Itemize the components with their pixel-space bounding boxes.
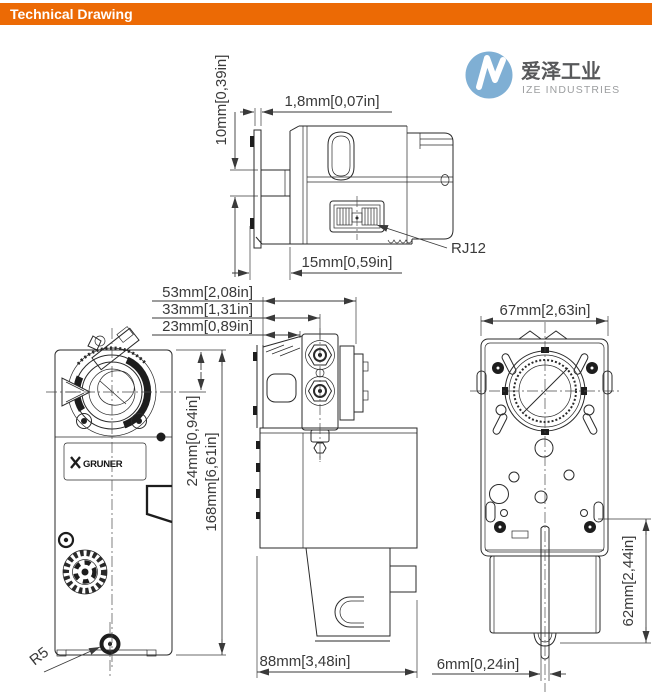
cable-notch xyxy=(147,486,172,522)
side-view xyxy=(253,328,417,641)
dim-23: 23mm[0,89in] xyxy=(162,318,253,335)
dim-top-depth: 15mm[0,59in] xyxy=(302,254,393,271)
callout-rj12: RJ12 xyxy=(451,240,486,257)
side-view-dimensions: 88mm[3,48in] xyxy=(257,556,417,678)
dim-slot-width: 6mm[0,24in] xyxy=(437,656,520,673)
manual-override-gear xyxy=(63,550,107,594)
header-bar: Technical Drawing xyxy=(0,3,652,25)
stacked-dimensions: 53mm[2,08in] 33mm[1,31in] 23mm[0,89in] xyxy=(152,284,356,348)
brand-text: GRUNER xyxy=(83,459,123,470)
dim-back-width: 67mm[2,63in] xyxy=(500,302,591,319)
dim-top-height: 10mm[0,39in] xyxy=(213,55,230,146)
dim-33: 33mm[1,31in] xyxy=(162,301,253,318)
logo-name-en: IZE INDUSTRIES xyxy=(522,84,620,96)
dim-back-height: 62mm[2,44in] xyxy=(620,536,637,627)
dim-hub-offset: 24mm[0,94in] xyxy=(184,396,201,487)
top-view xyxy=(250,126,453,248)
front-view: GRUNER xyxy=(46,326,180,676)
technical-drawing-page: Technical Drawing 爱泽工业 IZE INDUSTRIES xyxy=(0,0,652,696)
dim-plate-thickness: 1,8mm[0,07in] xyxy=(284,93,379,110)
page-title: Technical Drawing xyxy=(10,6,133,22)
dim-body-height: 168mm[6,61in] xyxy=(203,432,220,531)
brand-label: GRUNER xyxy=(64,443,146,480)
output-shaft xyxy=(261,170,290,196)
front-view-dimensions: 24mm[0,94in] 168mm[6,61in] R5 xyxy=(26,350,226,672)
logo-name-cn: 爱泽工业 xyxy=(521,59,601,83)
back-view xyxy=(470,322,622,692)
dim-53: 53mm[2,08in] xyxy=(162,284,253,301)
company-logo: 爱泽工业 IZE INDUSTRIES xyxy=(466,52,621,99)
technical-drawing: Technical Drawing 爱泽工业 IZE INDUSTRIES xyxy=(0,0,652,696)
dim-side-width: 88mm[3,48in] xyxy=(260,653,351,670)
callout-r5: R5 xyxy=(26,644,52,669)
